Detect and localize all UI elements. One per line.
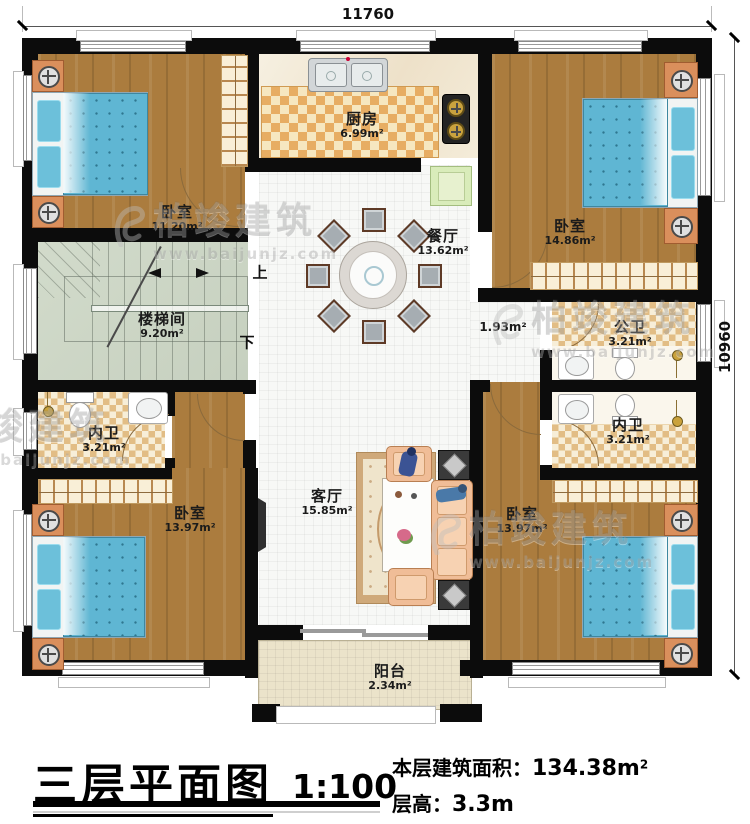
floor-plan-page: 上 下 xyxy=(0,0,750,824)
wall-bedroomtr-bottom xyxy=(478,288,712,302)
refrigerator-top xyxy=(438,172,465,201)
dining-chair xyxy=(418,264,442,288)
floor-corridor xyxy=(470,302,540,382)
label-bath-public: 公卫3.21m² xyxy=(608,319,651,349)
cushion xyxy=(437,548,467,576)
sink-bowl xyxy=(565,356,589,376)
room-name: 餐厅 xyxy=(417,228,468,245)
nightstand-knob xyxy=(38,644,60,666)
window-sill xyxy=(76,30,192,41)
wardrobe-bottom-right xyxy=(552,480,698,503)
bed-blanket-fold xyxy=(63,93,99,193)
sink-basin xyxy=(315,63,347,87)
bath-right-sink xyxy=(558,394,594,424)
nightstand-knob xyxy=(38,66,60,88)
bed-top-right xyxy=(582,98,698,208)
sink-bowl xyxy=(565,400,589,420)
stove-burner xyxy=(447,99,465,117)
person-head xyxy=(407,447,416,456)
nightstand-knob xyxy=(671,643,693,665)
label-bath-right: 内卫3.21m² xyxy=(606,417,649,447)
wall-balcony-corner-right xyxy=(440,704,482,722)
room-name: 卧室 xyxy=(544,218,595,235)
nightstand xyxy=(32,196,64,228)
flower-vase xyxy=(397,529,411,541)
room-area: 9.20m² xyxy=(138,328,186,341)
label-bedroom-top-right: 卧室14.86m² xyxy=(544,218,595,248)
building-area-label: 本层建筑面积： xyxy=(392,756,532,780)
floor-height-label: 层高： xyxy=(392,792,452,816)
pillow xyxy=(671,107,695,151)
window-bedroom-tl-top xyxy=(80,41,186,52)
nightstand-knob xyxy=(38,202,60,224)
wall-hall-stub-top xyxy=(243,380,256,394)
floor-height-row: 层高：3.3m xyxy=(392,788,514,817)
wardrobe-top-left xyxy=(221,55,248,167)
nightstand-knob xyxy=(671,216,693,238)
person-head xyxy=(458,484,467,493)
room-area: 3.21m² xyxy=(82,442,125,455)
room-name: 卧室 xyxy=(151,204,202,221)
window-bedroom-tr-right xyxy=(697,78,711,196)
floor-height-value: 3.3m xyxy=(452,792,514,817)
wall-bath-west-b xyxy=(540,465,552,480)
coffee-table xyxy=(382,478,434,572)
window-sill xyxy=(714,74,725,202)
wall-stair-bottom xyxy=(22,380,248,392)
shower-hose xyxy=(676,358,677,378)
wall-bedroomtl-bottom xyxy=(22,228,248,242)
window-kitchen-top xyxy=(300,41,430,52)
pillow xyxy=(671,155,695,199)
bed-bottom-right xyxy=(582,536,698,638)
shower-head xyxy=(672,350,683,361)
dimension-top-value: 11760 xyxy=(337,5,399,23)
balcony-railing xyxy=(276,706,436,724)
nightstand xyxy=(664,504,698,536)
room-name: 公卫 xyxy=(608,319,651,336)
label-bedroom-bottom-left: 卧室13.97m² xyxy=(164,505,215,535)
refrigerator xyxy=(430,166,472,206)
title-underline-thin xyxy=(33,811,380,813)
dimension-line-right xyxy=(734,38,735,676)
label-corridor-area: 1.93m² xyxy=(479,321,526,335)
building-area-row: 本层建筑面积：134.38m2 xyxy=(392,752,648,781)
label-bedroom-top-left: 卧室11.20m² xyxy=(151,204,202,234)
room-area: 13.97m² xyxy=(496,523,547,536)
nightstand-knob xyxy=(671,70,693,92)
corridor-area-value: 1.93m² xyxy=(479,321,526,335)
shower-head xyxy=(43,406,54,417)
wall-living-bottom-a xyxy=(245,625,303,640)
room-name: 客厅 xyxy=(301,488,352,505)
label-living: 客厅15.85m² xyxy=(301,488,352,518)
lamp xyxy=(442,583,466,607)
shower-head xyxy=(672,416,683,427)
faucet-dot xyxy=(346,57,350,61)
title-block: 三层平面图 1:100 本层建筑面积：134.38m2 层高：3.3m xyxy=(0,745,750,824)
wall-kitchen-bottom xyxy=(245,158,421,172)
nightstand xyxy=(32,60,64,92)
dimension-right-value: 10960 xyxy=(716,316,734,378)
pillow xyxy=(37,146,61,188)
window-bath-public-right xyxy=(697,304,711,362)
label-bedroom-bottom-right: 卧室13.97m² xyxy=(496,506,547,536)
sink-bowl xyxy=(136,398,162,419)
window-bath-left xyxy=(23,412,37,450)
tv xyxy=(258,498,266,552)
wall-bathright-bottom xyxy=(552,468,696,480)
label-kitchen: 厨房6.99m² xyxy=(340,111,383,141)
wardrobe-rail xyxy=(553,492,697,493)
room-area: 3.21m² xyxy=(608,336,651,349)
stair-up-label: 上 xyxy=(252,262,267,283)
drain xyxy=(362,71,372,81)
bed-blanket-fold xyxy=(63,537,99,635)
dining-chair xyxy=(362,320,386,344)
pillow xyxy=(671,589,695,630)
bath-public-sink xyxy=(558,350,594,380)
room-name: 厨房 xyxy=(340,111,383,128)
table-item xyxy=(411,493,417,499)
room-area: 11.20m² xyxy=(151,221,202,234)
pillow xyxy=(37,544,61,585)
wall-kitchen-bedroomtr xyxy=(478,38,492,232)
room-area: 13.62m² xyxy=(417,245,468,258)
nightstand xyxy=(664,638,698,668)
room-area: 3.21m² xyxy=(606,434,649,447)
wardrobe-rail xyxy=(39,492,172,493)
nightstand-knob xyxy=(38,510,60,532)
building-area-sup: 2 xyxy=(640,758,648,772)
nightstand xyxy=(32,504,64,536)
table-item xyxy=(395,491,402,498)
kitchen-stove xyxy=(442,94,470,144)
wardrobe-rail xyxy=(235,56,236,166)
wardrobe-top-right xyxy=(530,262,698,290)
window-stairwell-left xyxy=(23,268,37,354)
pillow xyxy=(671,544,695,585)
wardrobe-bottom-left xyxy=(38,479,173,504)
window-bedroom-bl-bottom xyxy=(62,662,204,675)
bed-top-left xyxy=(32,92,148,196)
room-name: 卧室 xyxy=(496,506,547,523)
sink-basin xyxy=(351,63,383,87)
pillow xyxy=(37,100,61,142)
drain xyxy=(326,71,336,81)
label-stairwell: 楼梯间9.20m² xyxy=(138,311,186,341)
window-sill xyxy=(296,30,436,41)
window-bedroom-tr-top xyxy=(518,41,642,52)
dining-chair xyxy=(362,208,386,232)
wall-bath-divider xyxy=(552,380,696,392)
cushion xyxy=(395,575,427,600)
window-sill xyxy=(58,677,210,688)
dimension-line-top xyxy=(22,26,712,27)
room-name: 卧室 xyxy=(164,505,215,522)
room-area: 6.99m² xyxy=(340,128,383,141)
room-name: 阳台 xyxy=(368,663,411,680)
room-area: 2.34m² xyxy=(368,680,411,693)
label-balcony: 阳台2.34m² xyxy=(368,663,411,693)
floor-balcony xyxy=(258,640,472,710)
room-name: 内卫 xyxy=(82,425,125,442)
dining-table xyxy=(339,241,407,309)
wall-bath-west-a xyxy=(540,350,552,420)
label-bath-left: 内卫3.21m² xyxy=(82,425,125,455)
balcony-sliding-door-leaf xyxy=(362,633,428,637)
chaise xyxy=(388,568,434,606)
room-name: 内卫 xyxy=(606,417,649,434)
building-area-value: 134.38m xyxy=(532,756,640,781)
toilet-bowl xyxy=(615,357,635,380)
bed-blanket-fold xyxy=(631,537,667,635)
nightstand xyxy=(32,638,64,670)
wall-vestibule-stub xyxy=(470,380,490,392)
window-sill xyxy=(514,30,648,41)
stair-arrowhead-right xyxy=(196,268,209,278)
nightstand xyxy=(664,208,698,244)
window-sill xyxy=(508,677,666,688)
stair-arrowhead-left xyxy=(148,268,161,278)
title-underline-thick xyxy=(33,801,380,807)
room-area: 14.86m² xyxy=(544,235,595,248)
wall-balcony-right xyxy=(470,640,483,678)
room-area: 13.97m² xyxy=(164,522,215,535)
window-bedroom-br-bottom xyxy=(512,662,660,675)
nightstand-knob xyxy=(671,510,693,532)
pillow xyxy=(37,589,61,630)
wardrobe-rail xyxy=(531,276,697,277)
toilet-bowl xyxy=(615,394,635,417)
stove-burner xyxy=(447,122,465,140)
stair-down-label: 下 xyxy=(239,332,254,353)
bed-bottom-left xyxy=(32,536,146,638)
side-table xyxy=(438,580,470,610)
kitchen-sink xyxy=(308,58,388,92)
lamp xyxy=(442,453,466,477)
wall-hall-stub-bottom xyxy=(243,440,256,468)
cushion xyxy=(437,517,467,546)
label-dining: 餐厅13.62m² xyxy=(417,228,468,258)
balcony-sliding-door-leaf xyxy=(300,629,366,633)
side-table xyxy=(438,450,470,480)
wall-living-bottom-b xyxy=(428,625,483,640)
room-name: 楼梯间 xyxy=(138,311,186,328)
wall-balcony-left xyxy=(245,640,258,678)
bath-left-sink-counter xyxy=(128,392,168,424)
nightstand xyxy=(664,62,698,98)
bed-blanket-fold xyxy=(631,99,667,205)
room-area: 15.85m² xyxy=(301,505,352,518)
dining-chair xyxy=(306,264,330,288)
dining-table-center xyxy=(364,266,384,286)
